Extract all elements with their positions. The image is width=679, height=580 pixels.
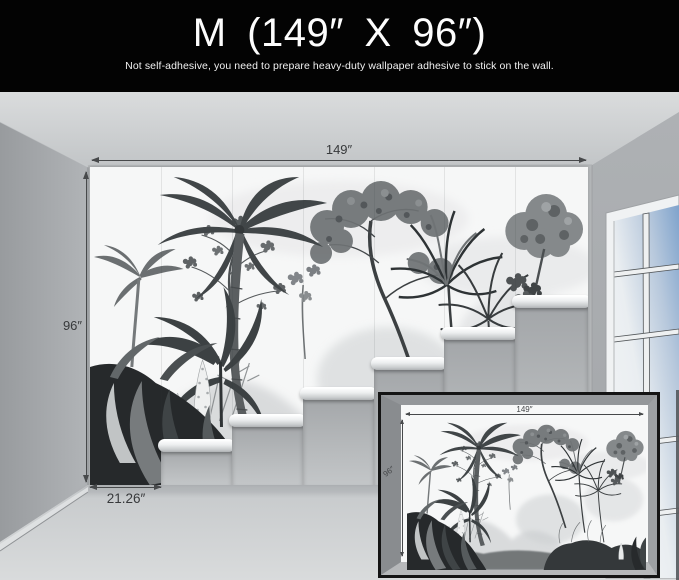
inset-mural bbox=[407, 418, 646, 570]
panel-width-dimension-label: 21.26″ bbox=[84, 491, 168, 506]
height-dimension-line bbox=[86, 172, 87, 482]
rolled-panel-edge bbox=[158, 439, 235, 452]
panel-seam bbox=[161, 167, 162, 485]
wallpaper-roll-step bbox=[232, 421, 303, 485]
inset-width-line bbox=[406, 414, 643, 415]
inset-preview: 149″ 96″ bbox=[378, 392, 660, 578]
wallpaper-roll-step bbox=[303, 394, 374, 485]
height-dimension-label: 96″ bbox=[38, 318, 82, 333]
rolled-panel-edge bbox=[300, 387, 377, 400]
adhesive-warning-text: Not self-adhesive, you need to prepare h… bbox=[0, 60, 679, 72]
product-size-image: M (149″ X 96″) Not self-adhesive, you ne… bbox=[0, 0, 679, 580]
product-size-title: M (149″ X 96″) bbox=[0, 0, 679, 56]
room-scene: 149″ 96″ 21.26″ 149″ 96″ bbox=[0, 92, 679, 580]
rolled-panel-edge bbox=[441, 327, 518, 340]
width-dimension-label: 149″ bbox=[92, 142, 586, 157]
rolled-panel-edge bbox=[229, 414, 306, 427]
wallpaper-roll-step bbox=[161, 446, 232, 485]
inset-width-label: 149″ bbox=[401, 405, 648, 414]
width-dimension-line bbox=[92, 160, 586, 161]
rolled-panel-edge bbox=[512, 295, 588, 308]
panel-width-dimension-line bbox=[90, 487, 161, 488]
header-banner: M (149″ X 96″) Not self-adhesive, you ne… bbox=[0, 0, 679, 92]
rolled-panel-edge bbox=[371, 357, 447, 370]
inset-height-label: 96″ bbox=[381, 464, 396, 478]
inset-height-line bbox=[402, 420, 403, 556]
inset-frame: 149″ 96″ bbox=[381, 395, 657, 575]
